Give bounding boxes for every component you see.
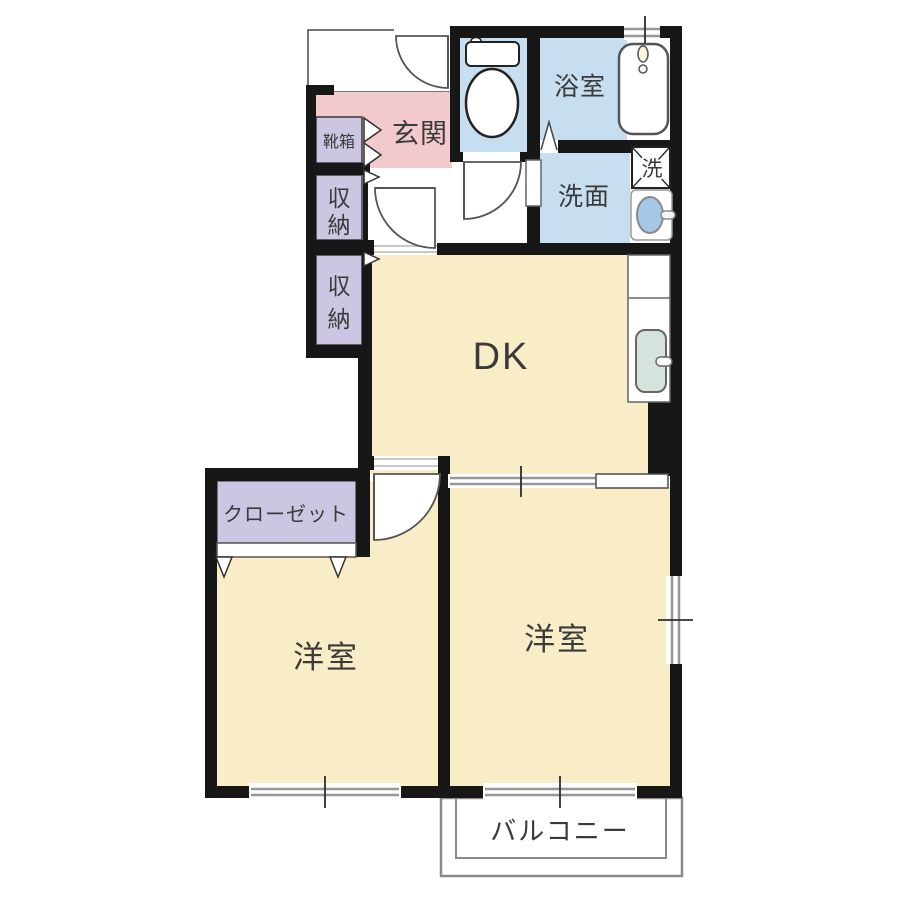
window-gap: [448, 474, 598, 488]
dk-room-strip: [628, 400, 648, 474]
storage2-label: 収: [328, 273, 351, 299]
floor-plan: 洗 玄関 靴箱 収 納 収 納 浴室 洗面 DK クローゼット 洋室 洋室 バル…: [0, 0, 900, 900]
dk-label: DK: [473, 336, 530, 378]
west-room-left-label: 洋室: [293, 640, 359, 675]
wall-center: [438, 456, 450, 798]
wall-left-lower: [205, 468, 217, 798]
storage1-label: 納: [328, 212, 351, 238]
washroom-label: 洗面: [558, 183, 610, 211]
wall-closet-right: [356, 468, 370, 557]
basin-faucet: [661, 211, 675, 219]
door-gap: [394, 27, 450, 34]
storage2-label: 納: [328, 306, 351, 332]
sliding-door-washroom: [526, 160, 541, 206]
closet-door-track: [217, 543, 356, 557]
toilet-tank: [466, 42, 519, 66]
wall-toilet-left: [450, 26, 460, 162]
wall-dk-left-upper: [362, 255, 372, 350]
fixed-panel: [596, 474, 668, 488]
wash-basin-icon: [631, 190, 675, 240]
west-room-right-label: 洋室: [524, 622, 590, 657]
toilet-bowl: [466, 69, 518, 137]
wall-genkan-top-stub: [306, 85, 334, 95]
floor-plan-page: 洗 玄関 靴箱 収 納 収 納 浴室 洗面 DK クローゼット 洋室 洋室 バル…: [0, 0, 900, 900]
wall-toilet-bath: [527, 26, 540, 152]
window-gap: [624, 24, 660, 40]
genkan-label: 玄関: [392, 119, 448, 149]
wall-kitchen-stub: [648, 398, 682, 476]
bathtub-icon: [619, 44, 668, 134]
wall-closet-top: [205, 468, 370, 481]
balcony-label: バルコニー: [490, 816, 629, 846]
wall-dk-bottom-l: [358, 456, 374, 470]
toilet-icon: [466, 38, 519, 138]
shoebox-label: 靴箱: [323, 133, 355, 151]
wall-left-upper: [306, 85, 316, 358]
washer-label: 洗: [642, 158, 663, 181]
kitchen-faucet: [656, 357, 672, 366]
washing-machine-icon: 洗: [632, 147, 670, 188]
wall-toilet-bottom-l: [450, 152, 463, 162]
basin-bowl: [637, 197, 663, 233]
closet-label: クローゼット: [223, 503, 349, 526]
wall-dk-top: [437, 243, 682, 255]
bathtub-faucet: [638, 46, 648, 62]
bathtub-drain: [639, 65, 647, 73]
kitchen-icon: [628, 255, 672, 402]
storage1-label: 収: [328, 185, 351, 211]
wall-genkan-bottom: [306, 163, 370, 175]
wall-dk-left-lower: [358, 350, 372, 462]
doorway-dk-west-left: [374, 456, 438, 470]
bath-label: 浴室: [554, 73, 606, 101]
